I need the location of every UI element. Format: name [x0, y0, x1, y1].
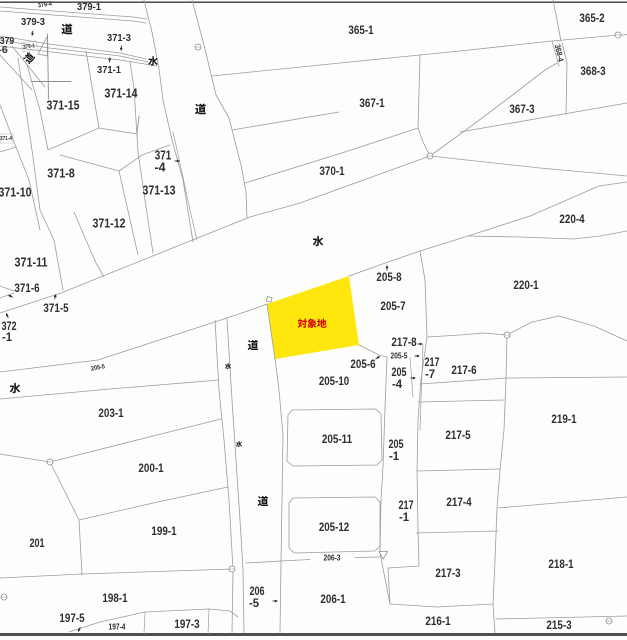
svg-text:-1: -1 — [2, 330, 12, 344]
svg-text:-1: -1 — [389, 449, 399, 463]
svg-text:-4: -4 — [155, 160, 167, 175]
svg-text:371-13: 371-13 — [143, 183, 176, 198]
svg-text:367-3: 367-3 — [509, 102, 534, 116]
svg-text:205-8: 205-8 — [376, 270, 401, 284]
svg-text:205-5: 205-5 — [391, 352, 408, 361]
svg-text:200-1: 200-1 — [138, 461, 163, 475]
svg-text:215-3: 215-3 — [546, 618, 571, 632]
svg-text:368-3: 368-3 — [580, 64, 605, 78]
svg-text:371-14: 371-14 — [105, 86, 139, 101]
svg-text:217-8: 217-8 — [391, 335, 416, 349]
svg-text:220-4: 220-4 — [559, 212, 584, 226]
svg-text:220-1: 220-1 — [513, 278, 538, 292]
svg-text:217-3: 217-3 — [435, 566, 460, 580]
svg-text:371-10: 371-10 — [0, 185, 32, 200]
svg-text:371-3: 371-3 — [107, 32, 131, 44]
svg-text:367-1: 367-1 — [359, 96, 384, 110]
svg-text:-5: -5 — [249, 596, 259, 610]
svg-text:379-1: 379-1 — [77, 1, 101, 13]
svg-text:203-1: 203-1 — [98, 406, 123, 420]
svg-text:206-3: 206-3 — [324, 554, 341, 563]
svg-text:218-1: 218-1 — [548, 557, 573, 571]
svg-text:197-5: 197-5 — [59, 611, 84, 625]
svg-text:-6: -6 — [0, 44, 8, 56]
svg-text:205-11: 205-11 — [322, 432, 353, 446]
svg-text:205-10: 205-10 — [319, 374, 350, 388]
svg-text:217-6: 217-6 — [451, 363, 476, 377]
svg-text:198-1: 198-1 — [102, 591, 127, 605]
svg-text:205-7: 205-7 — [380, 299, 405, 313]
svg-text:371-12: 371-12 — [93, 216, 126, 231]
svg-text:199-1: 199-1 — [151, 524, 176, 538]
svg-text:371-5: 371-5 — [43, 301, 68, 315]
svg-text:370-1: 370-1 — [319, 164, 344, 178]
svg-text:217-4: 217-4 — [446, 495, 471, 509]
svg-text:365-1: 365-1 — [348, 23, 373, 37]
svg-text:365-2: 365-2 — [579, 11, 604, 25]
svg-text:371-11: 371-11 — [15, 255, 48, 270]
svg-text:216-1: 216-1 — [425, 614, 450, 628]
svg-text:201: 201 — [29, 536, 44, 550]
svg-text:371-1: 371-1 — [97, 64, 121, 76]
svg-text:371-8: 371-8 — [47, 166, 75, 181]
svg-text:217-5: 217-5 — [445, 428, 470, 442]
svg-text:206-1: 206-1 — [320, 592, 345, 606]
svg-text:371-4: 371-4 — [0, 136, 13, 142]
svg-text:197-3: 197-3 — [174, 617, 199, 631]
svg-text:197-4: 197-4 — [109, 623, 126, 632]
svg-text:379-3: 379-3 — [21, 16, 45, 28]
svg-text:205-6: 205-6 — [350, 357, 375, 371]
svg-text:-7: -7 — [425, 367, 435, 381]
svg-text:371-6: 371-6 — [14, 281, 39, 295]
svg-text:-4: -4 — [392, 377, 402, 391]
svg-text:371-15: 371-15 — [47, 98, 80, 113]
svg-text:219-1: 219-1 — [551, 412, 576, 426]
svg-text:-1: -1 — [399, 510, 409, 524]
svg-text:205-12: 205-12 — [319, 520, 350, 534]
